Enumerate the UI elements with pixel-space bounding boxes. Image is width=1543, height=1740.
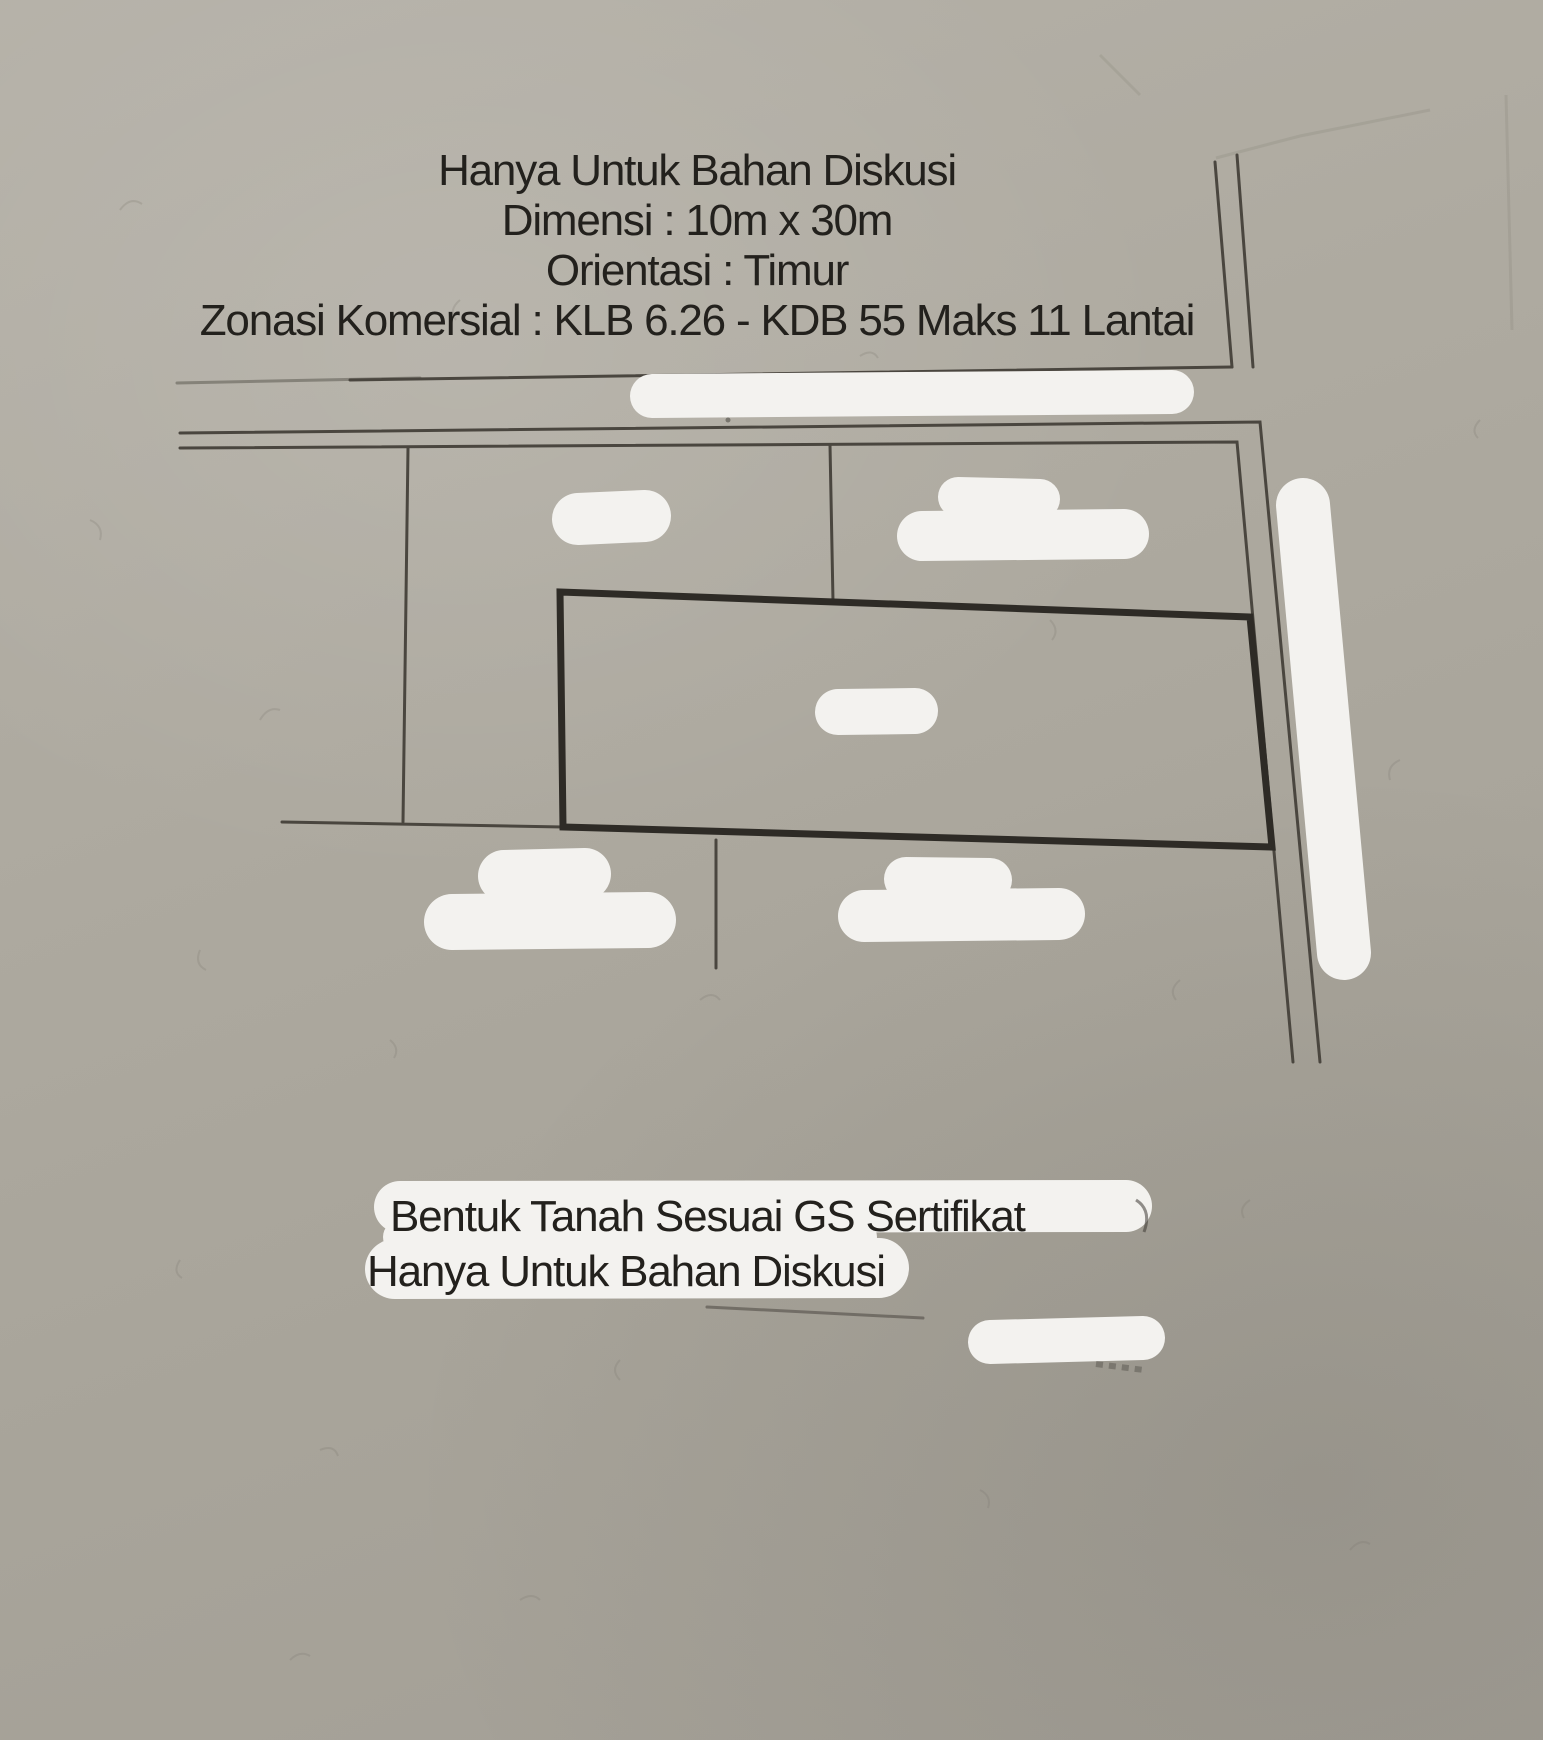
top-annotation-line-3: Orientasi : Timur: [200, 246, 1195, 296]
pen-smudge-remnant: [1096, 1364, 1144, 1370]
redaction-mark-inside-plot: [838, 711, 915, 712]
stray-pencil-line-bottom: [707, 1307, 923, 1318]
redaction-mark-bottom-left-top: [504, 874, 585, 876]
photographed-site-sketch: Hanya Untuk Bahan Diskusi Dimensi : 10m …: [0, 0, 1543, 1740]
redaction-mark-left-label: [578, 516, 645, 519]
lower-boundary-line-left: [282, 822, 563, 827]
redaction-mark-right-label-bottom: [922, 534, 1124, 536]
top-annotation-block: Hanya Untuk Bahan Diskusi Dimensi : 10m …: [200, 146, 1195, 346]
redaction-mark-bottom-center-bottom: [864, 914, 1059, 916]
redaction-mark-street-vertical-bar: [1303, 505, 1344, 953]
top-annotation-line-2: Dimensi : 10m x 30m: [200, 196, 1195, 246]
redaction-mark-right-label-top: [958, 497, 1040, 499]
parcel-divider-line-left: [403, 448, 408, 822]
top-annotation-line-1: Hanya Untuk Bahan Diskusi: [200, 146, 1195, 196]
redaction-mark-bottom-center-top: [906, 879, 990, 880]
top-annotation-line-4: Zonasi Komersial : KLB 6.26 - KDB 55 Mak…: [200, 296, 1195, 346]
bottom-annotation-line-2: Hanya Untuk Bahan Diskusi: [367, 1247, 885, 1297]
pencil-speck: [726, 418, 731, 423]
redaction-mark-bottom-left-bottom: [452, 920, 648, 922]
street-double-line-right: [1237, 155, 1253, 367]
redaction-mark-bottom-lone-bar: [990, 1338, 1143, 1342]
paper-fiber-texture: [90, 201, 1480, 1660]
street-double-line-left: [1215, 162, 1232, 367]
road-edge-line-outer: [180, 422, 1320, 1062]
bottom-annotation-line-1: Bentuk Tanah Sesuai GS Sertifikat: [390, 1192, 1025, 1242]
parcel-divider-line-middle: [830, 445, 833, 601]
redaction-mark-top-bar: [652, 392, 1172, 396]
